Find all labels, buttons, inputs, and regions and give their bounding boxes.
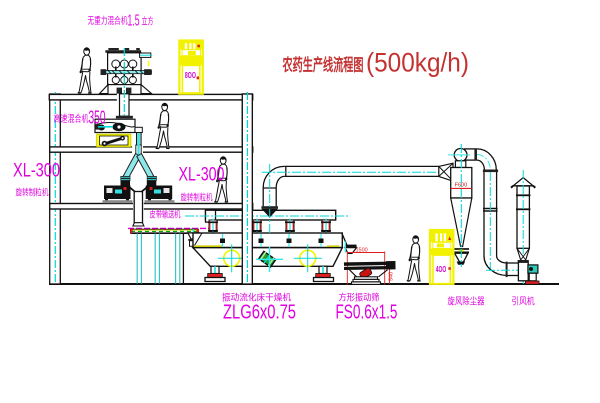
svg-text:旋转制粒机: 旋转制粒机 — [181, 192, 213, 203]
svg-text:1500: 1500 — [356, 248, 368, 254]
svg-text:4OO: 4OO — [436, 265, 447, 274]
svg-text:XL-300: XL-300 — [179, 164, 225, 185]
svg-text:(500kg/h): (500kg/h) — [366, 48, 469, 78]
svg-text:8OO: 8OO — [185, 71, 196, 80]
svg-text:ZLG6x0.75: ZLG6x0.75 — [223, 302, 296, 324]
svg-text:旋风除尘器: 旋风除尘器 — [448, 296, 485, 308]
svg-text:引风机: 引风机 — [512, 296, 535, 308]
svg-text:XL-300: XL-300 — [13, 161, 60, 182]
svg-text:FS0.6x1.5: FS0.6x1.5 — [336, 302, 398, 324]
svg-text:农药生产线流程图: 农药生产线流程图 — [282, 55, 364, 75]
svg-text:旋转制粒机: 旋转制粒机 — [16, 187, 49, 198]
svg-text:皮带输送机: 皮带输送机 — [150, 209, 181, 220]
svg-text:540: 540 — [389, 272, 395, 281]
